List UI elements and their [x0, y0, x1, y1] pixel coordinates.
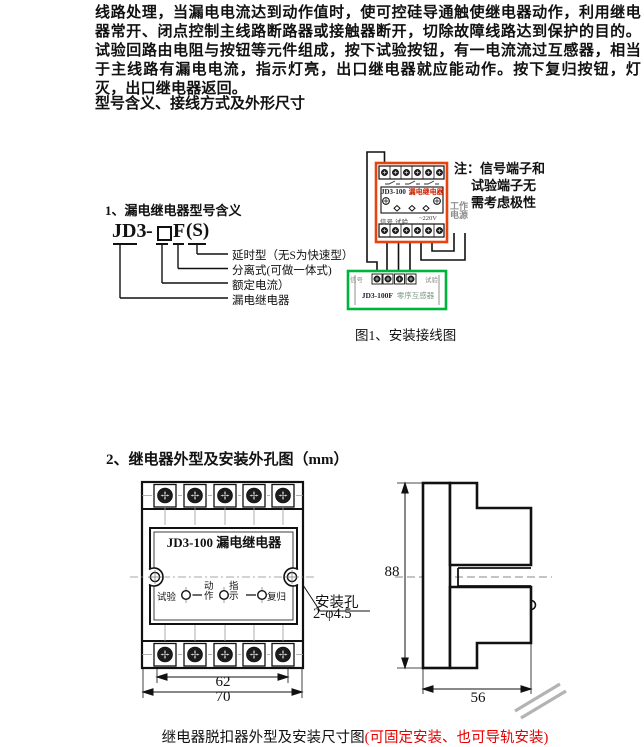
profile-shape [423, 483, 531, 668]
dim-88: 88 [381, 564, 403, 581]
relay-power-terminal-label: ~220V [419, 215, 437, 222]
figure1-caption: 图1、安装接线图 [355, 324, 456, 344]
mount-hole-spec: 2-φ4.5 [313, 606, 352, 623]
mounting-hole-left [146, 568, 165, 587]
model-label-delay-type: 延时型（无S为快速型） [232, 247, 353, 260]
transformer-model-text: JD3-100F [362, 291, 393, 300]
model-box-placeholder [157, 226, 172, 241]
test-button-label: 试验 [157, 589, 176, 603]
mounting-hole-right [283, 568, 302, 587]
note-line3: 需考虑极性 [471, 194, 545, 211]
footer-caption: 继电器脱扣器外型及安装尺寸图(可固定安装、也可导轨安装) [130, 726, 580, 747]
relay-test-terminal-label: 试验 [395, 216, 408, 226]
side-view-drawing [380, 478, 580, 723]
model-label-separate-type: 分离式(可做一体式) [232, 262, 332, 275]
transformer-name-text: 零序互感器 [397, 291, 435, 300]
model-label-relay: 漏电继电器 [232, 292, 290, 305]
section1-heading: 型号含义、接线方式及外形尺寸 [95, 92, 305, 113]
section2-heading: 2、继电器外型及安装外孔图（mm） [106, 448, 349, 469]
action-lamp-label: 动作 [204, 583, 215, 602]
front-view-title: JD3-100 漏电继电器 [151, 532, 297, 551]
intro-paragraph: 线路处理，当漏电电流达到动作值时，使可控硅导通触使继电器动作，利用继电器常开、闭… [95, 4, 641, 99]
footer-caption-black: 继电器脱扣器外型及安装尺寸图 [162, 730, 365, 746]
indicate-lamp-label: 指示 [229, 583, 240, 602]
relay-unit [376, 163, 447, 242]
relay-nameplate: JD3-100 漏电继电器 [381, 187, 443, 197]
model-code-option: (S) [186, 220, 209, 242]
model-label-rated-current: 额定电流） [232, 277, 290, 290]
transformer-nameplate: JD3-100F 零序互感器 [352, 290, 444, 301]
note-line2: 试验端子无 [471, 177, 545, 194]
note-line1: 注：信号端子和 [454, 160, 545, 177]
transformer-signal-label: 信号 [350, 274, 363, 284]
relay-name-text: 漏电继电器 [409, 188, 444, 196]
dim-70: 70 [193, 689, 253, 706]
model-tree-lines [110, 240, 240, 305]
transformer-test-label: 试验 [425, 274, 438, 284]
relay-signal-terminal-label: 信号 [380, 216, 393, 226]
reset-button-label: 复归 [267, 589, 286, 603]
footer-caption-red: (可固定安装、也可导轨安装) [365, 730, 549, 746]
document-page: { "page": { "intro_paragraph": "线路处理，当漏电… [0, 0, 644, 747]
relay-model-text: JD3-100 [381, 188, 406, 196]
model-diagram-title: 1、漏电继电器型号含义 [105, 200, 242, 219]
dim-56: 56 [456, 690, 500, 707]
working-power-label: 工作 电源 [450, 202, 468, 220]
